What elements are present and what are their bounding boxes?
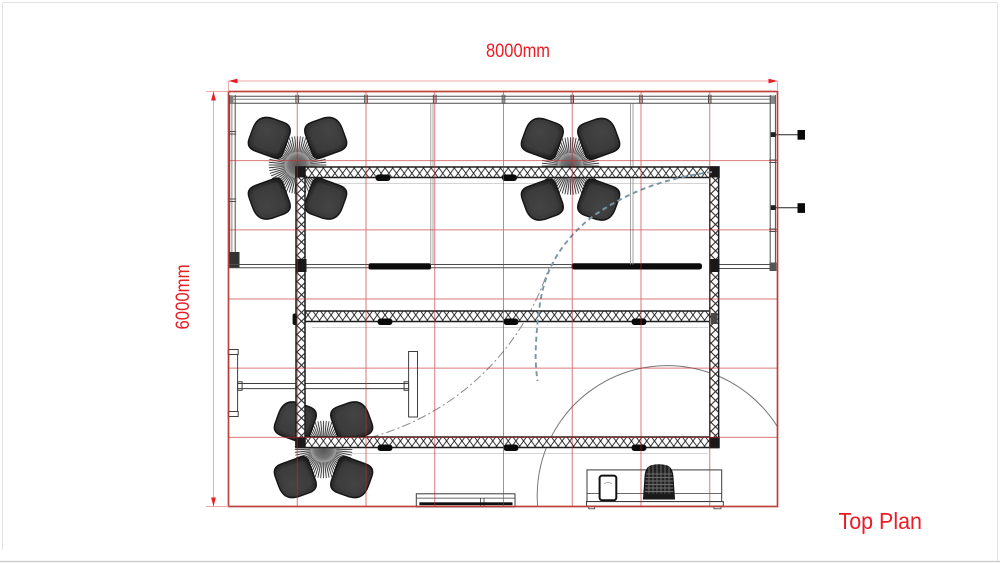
svg-text:8000mm: 8000mm: [486, 40, 550, 62]
svg-text:Top Plan: Top Plan: [839, 508, 923, 534]
svg-text:6000mm: 6000mm: [172, 265, 194, 330]
